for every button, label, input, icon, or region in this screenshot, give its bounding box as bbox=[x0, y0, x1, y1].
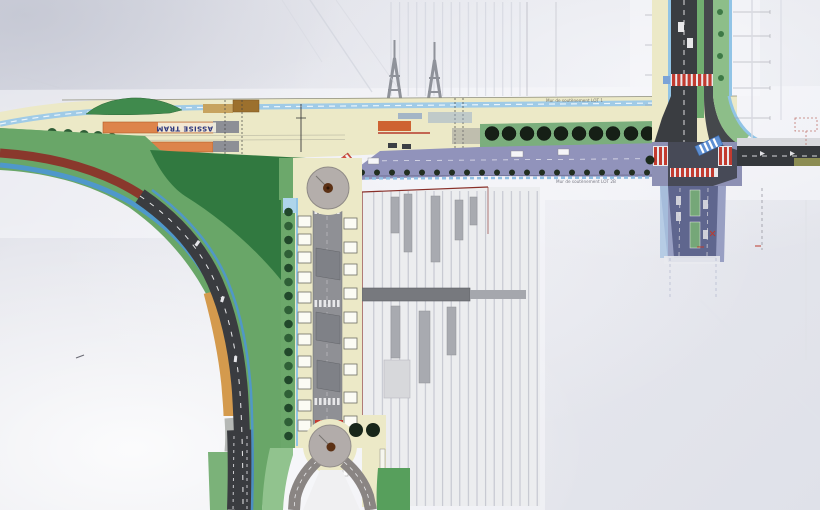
tram-stop-platforms bbox=[316, 248, 340, 392]
crosswalk-bar bbox=[671, 168, 674, 177]
retaining-wall-label-lot2b: Mur de soutènement LOT 2B bbox=[556, 179, 616, 184]
crosswalk-bar bbox=[682, 74, 685, 86]
tree-icon bbox=[569, 170, 575, 176]
crosswalk-bar bbox=[701, 168, 704, 177]
crosswalk-bar bbox=[328, 300, 331, 307]
roundabout-center bbox=[327, 443, 336, 452]
vehicle-icon bbox=[678, 22, 684, 32]
crosswalk-bar bbox=[711, 168, 714, 177]
crosswalk-bar bbox=[315, 300, 318, 307]
tree-icon bbox=[284, 390, 293, 399]
building-footprint-tan bbox=[203, 104, 233, 113]
boulevard-tree-row bbox=[284, 208, 293, 441]
platform-ramp bbox=[213, 141, 239, 152]
tree-icon bbox=[554, 127, 568, 141]
crosswalk-bar bbox=[706, 168, 709, 177]
tree-icon bbox=[389, 170, 395, 176]
crosswalk-bar bbox=[324, 398, 327, 405]
tree-icon bbox=[284, 236, 293, 245]
photographed-plan: ASSISE TRAM Mur de soutènement LOT 1 bbox=[0, 0, 820, 510]
verge-olive bbox=[794, 158, 820, 166]
tree-icon bbox=[284, 208, 293, 217]
crosswalk-bar bbox=[703, 74, 706, 86]
tree-icon bbox=[464, 170, 470, 176]
plan-drawing: ASSISE TRAM Mur de soutènement LOT 1 bbox=[0, 0, 820, 510]
crosswalk-bar bbox=[719, 147, 722, 165]
crosswalk-bar bbox=[676, 168, 679, 177]
upper-roundabout bbox=[301, 161, 355, 215]
tree-icon bbox=[284, 334, 293, 343]
vehicle-icon bbox=[687, 38, 693, 48]
tree-icon bbox=[572, 127, 586, 141]
crosswalk-bar bbox=[333, 398, 336, 405]
tree-icon bbox=[434, 170, 440, 176]
tree-icon bbox=[646, 156, 655, 165]
building-footprint bbox=[298, 400, 311, 411]
crosswalk-bar bbox=[691, 168, 694, 177]
crosswalk-bar bbox=[654, 147, 657, 165]
grass-southwest bbox=[208, 452, 228, 510]
tree-icon bbox=[284, 404, 293, 413]
tree-icon bbox=[284, 348, 293, 357]
assise-tram-label: ASSISE TRAM bbox=[156, 125, 213, 133]
crosswalk-red-south bbox=[671, 168, 714, 177]
tree-icon bbox=[624, 127, 638, 141]
tree-icon bbox=[284, 362, 293, 371]
crosswalk-bar bbox=[337, 398, 340, 405]
platform-ramp bbox=[213, 121, 239, 133]
tree-icon bbox=[539, 170, 545, 176]
roundabout-center-dot bbox=[327, 187, 330, 190]
crosswalk-bar bbox=[696, 168, 699, 177]
crosswalk-red-east bbox=[719, 147, 732, 165]
handwritten-mark bbox=[76, 355, 84, 358]
tree-icon bbox=[599, 170, 605, 176]
crosswalk-bar bbox=[328, 398, 331, 405]
crosswalk-bar bbox=[686, 168, 689, 177]
tree-icon bbox=[509, 170, 515, 176]
median-green bbox=[690, 222, 700, 248]
tree-icon bbox=[644, 170, 650, 176]
sidewalk-north bbox=[737, 138, 820, 146]
building-footprint bbox=[344, 364, 357, 375]
cycle-lane bbox=[660, 186, 668, 258]
works-area-gray bbox=[452, 128, 480, 144]
crosswalk-bar bbox=[698, 74, 701, 86]
tree-icon bbox=[349, 423, 363, 437]
tree-icon bbox=[718, 31, 724, 37]
vehicle-icon bbox=[402, 144, 411, 149]
tree-icon bbox=[284, 292, 293, 301]
tree-icon bbox=[502, 127, 516, 141]
tree-icon bbox=[606, 127, 620, 141]
tree-icon bbox=[524, 170, 530, 176]
tree-icon bbox=[284, 278, 293, 287]
building-footprint bbox=[298, 312, 311, 323]
building-footprint bbox=[298, 356, 311, 367]
tree-icon bbox=[366, 423, 380, 437]
building-footprint bbox=[344, 338, 357, 349]
grass-east bbox=[377, 468, 410, 510]
footbridge-extension bbox=[470, 290, 526, 299]
median-green bbox=[690, 190, 700, 216]
vehicle-icon bbox=[388, 143, 397, 148]
crosswalk-bar bbox=[319, 398, 322, 405]
tree-icon bbox=[718, 75, 724, 81]
building-footprint bbox=[298, 272, 311, 283]
building-footprint bbox=[344, 312, 357, 323]
avenue-south-leg bbox=[660, 186, 726, 298]
tree-icon bbox=[284, 376, 293, 385]
crosswalk-bar bbox=[664, 147, 667, 165]
tree-icon bbox=[284, 432, 293, 441]
building-footprint bbox=[344, 242, 357, 253]
tree-icon bbox=[449, 170, 455, 176]
tree-icon bbox=[494, 170, 500, 176]
tree-icon bbox=[404, 170, 410, 176]
tree-icon bbox=[717, 53, 723, 59]
tree-icon bbox=[717, 9, 723, 15]
building-footprint bbox=[298, 252, 311, 263]
crosswalk-bar bbox=[324, 300, 327, 307]
crosswalk-bar bbox=[659, 147, 662, 165]
crosswalk-bar bbox=[681, 168, 684, 177]
curve-road-wide bbox=[240, 430, 241, 510]
phase-end-fade bbox=[664, 256, 720, 264]
cycle-lane-east bbox=[729, 0, 732, 96]
crosswalk-bar bbox=[677, 74, 680, 86]
building-footprint bbox=[344, 264, 357, 275]
works-area-blue bbox=[428, 112, 472, 123]
crosswalk-bar bbox=[724, 147, 727, 165]
tree-icon bbox=[284, 264, 293, 273]
building-footprint-brown bbox=[233, 100, 259, 112]
tree-icon bbox=[485, 127, 499, 141]
tree-icon bbox=[554, 170, 560, 176]
tree-icon bbox=[284, 418, 293, 427]
main-intersection bbox=[646, 136, 743, 186]
building-footprint bbox=[298, 292, 311, 303]
refuge-blue bbox=[663, 76, 670, 84]
crosswalk-bar bbox=[333, 300, 336, 307]
platform-works-orange bbox=[378, 121, 411, 131]
tree-icon bbox=[284, 222, 293, 231]
crosswalk-bar bbox=[337, 300, 340, 307]
building-footprint bbox=[344, 288, 357, 299]
tree-icon bbox=[589, 127, 603, 141]
tree-icon bbox=[374, 170, 380, 176]
tree-icon bbox=[479, 170, 485, 176]
tree-icon bbox=[520, 127, 534, 141]
crosswalk-bar bbox=[672, 74, 675, 86]
building-footprint bbox=[298, 378, 311, 389]
tree-icon bbox=[284, 306, 293, 315]
crosswalk-red-west bbox=[654, 147, 667, 165]
rail-tracks-north bbox=[386, 2, 522, 96]
crosswalk-bar bbox=[708, 74, 711, 86]
building-footprint bbox=[298, 216, 311, 227]
tree-icon bbox=[614, 170, 620, 176]
building-footprint bbox=[298, 234, 311, 245]
tree-icon bbox=[584, 170, 590, 176]
crosswalk-bar bbox=[693, 74, 696, 86]
tree-icon bbox=[284, 320, 293, 329]
station-slab bbox=[384, 360, 410, 398]
retaining-wall-label-lot1: Mur de soutènement LOT 1 bbox=[546, 98, 603, 103]
footbridge bbox=[362, 288, 470, 301]
station-area bbox=[362, 187, 540, 507]
building-footprint bbox=[344, 392, 357, 403]
building-footprint bbox=[298, 334, 311, 345]
crosswalk-bar bbox=[315, 398, 318, 405]
tree-icon bbox=[284, 250, 293, 259]
tree-icon bbox=[537, 127, 551, 141]
crosswalk-bar bbox=[688, 74, 691, 86]
works-strip-blue bbox=[398, 113, 422, 119]
crosswalk-bar bbox=[319, 300, 322, 307]
building-footprint bbox=[344, 218, 357, 229]
tree-icon bbox=[629, 170, 635, 176]
tree-icon bbox=[419, 170, 425, 176]
crosswalk-bar bbox=[729, 147, 732, 165]
